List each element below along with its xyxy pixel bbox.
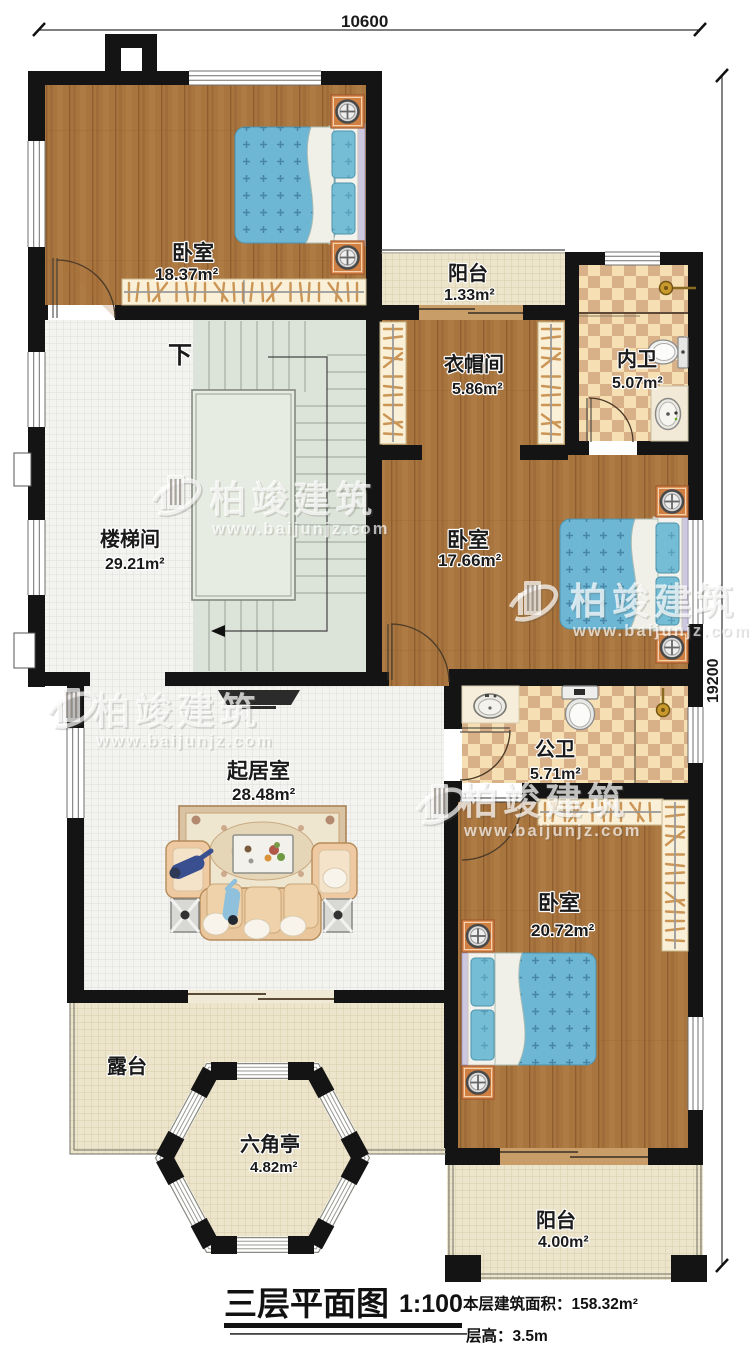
svg-text:19200: 19200 [705, 658, 722, 703]
svg-text:柏竣建筑: 柏竣建筑 [461, 780, 629, 822]
svg-text:www.baijunjz.com: www.baijunjz.com [572, 622, 750, 640]
svg-text:20.72m²: 20.72m² [531, 921, 595, 940]
svg-text:下: 下 [168, 342, 192, 369]
svg-text:柏竣建筑: 柏竣建筑 [93, 690, 261, 732]
svg-text:www.baijunjz.com: www.baijunjz.com [211, 520, 390, 538]
svg-text:卧室: 卧室 [172, 241, 214, 265]
svg-text:层高：3.5m: 层高：3.5m [466, 1326, 548, 1345]
svg-text:起居室: 起居室 [226, 759, 290, 783]
svg-text:三层平面图: 三层平面图 [224, 1285, 389, 1322]
svg-text:露台: 露台 [107, 1054, 147, 1078]
svg-text:www.baijunjz.com: www.baijunjz.com [95, 732, 274, 750]
svg-text:楼梯间: 楼梯间 [100, 527, 160, 551]
svg-text:4.82m²: 4.82m² [250, 1159, 298, 1176]
svg-text:本层建筑面积：158.32m²: 本层建筑面积：158.32m² [463, 1294, 638, 1313]
svg-text:5.86m²: 5.86m² [452, 381, 503, 398]
svg-text:18.37m²: 18.37m² [155, 265, 219, 284]
svg-text:28.48m²: 28.48m² [232, 785, 296, 804]
svg-text:公卫: 公卫 [535, 738, 575, 761]
svg-text:1:100: 1:100 [399, 1290, 463, 1318]
svg-text:阳台: 阳台 [448, 261, 488, 285]
svg-text:阳台: 阳台 [536, 1208, 576, 1232]
svg-text:29.21m²: 29.21m² [105, 556, 165, 573]
svg-text:1.33m²: 1.33m² [444, 287, 495, 304]
svg-text:4.00m²: 4.00m² [538, 1234, 589, 1251]
svg-text:六角亭: 六角亭 [240, 1132, 300, 1156]
svg-text:衣帽间: 衣帽间 [444, 352, 504, 376]
svg-text:内卫: 内卫 [617, 347, 657, 371]
svg-text:10600: 10600 [341, 12, 388, 31]
svg-text:5.07m²: 5.07m² [612, 375, 663, 392]
svg-text:www.baijunjz.com: www.baijunjz.com [463, 822, 642, 840]
svg-text:卧室: 卧室 [447, 528, 489, 552]
svg-text:柏竣建筑: 柏竣建筑 [209, 478, 377, 520]
svg-text:17.66m²: 17.66m² [438, 551, 502, 570]
svg-text:柏竣建筑: 柏竣建筑 [570, 580, 738, 622]
svg-text:卧室: 卧室 [538, 891, 580, 915]
